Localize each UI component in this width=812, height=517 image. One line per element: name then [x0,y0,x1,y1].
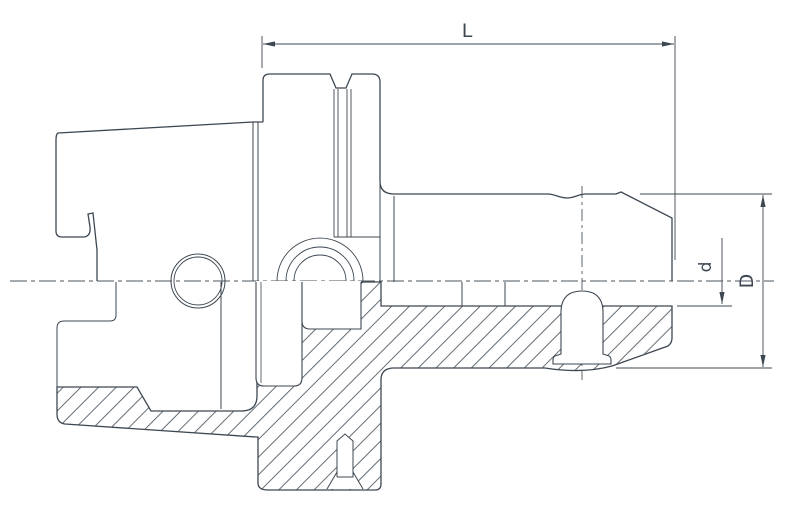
bore-mouth-arcs [277,238,363,281]
flange-groove-lines [334,89,380,237]
flange-counterbore [302,281,361,329]
tool-holder-engineering-drawing: L d D [0,0,812,517]
bore-window [462,282,505,306]
holder-outline [56,74,672,308]
taper-shank-outline [56,122,263,281]
flange-bore-slot [256,281,302,386]
dimension-length [262,36,675,260]
shank-bore-step [57,282,116,387]
set-screw-hole-section [553,291,611,364]
label-bore-d: d [696,262,716,273]
shank-face-lines [253,122,258,281]
label-outer-D: D [736,274,758,289]
section-hatching [57,281,672,490]
flange-body-nose-outline [263,74,672,281]
tool-holder-drawing-page: L d D [0,0,812,517]
flange-back-face-line [380,182,394,282]
label-length-L: L [462,20,473,42]
